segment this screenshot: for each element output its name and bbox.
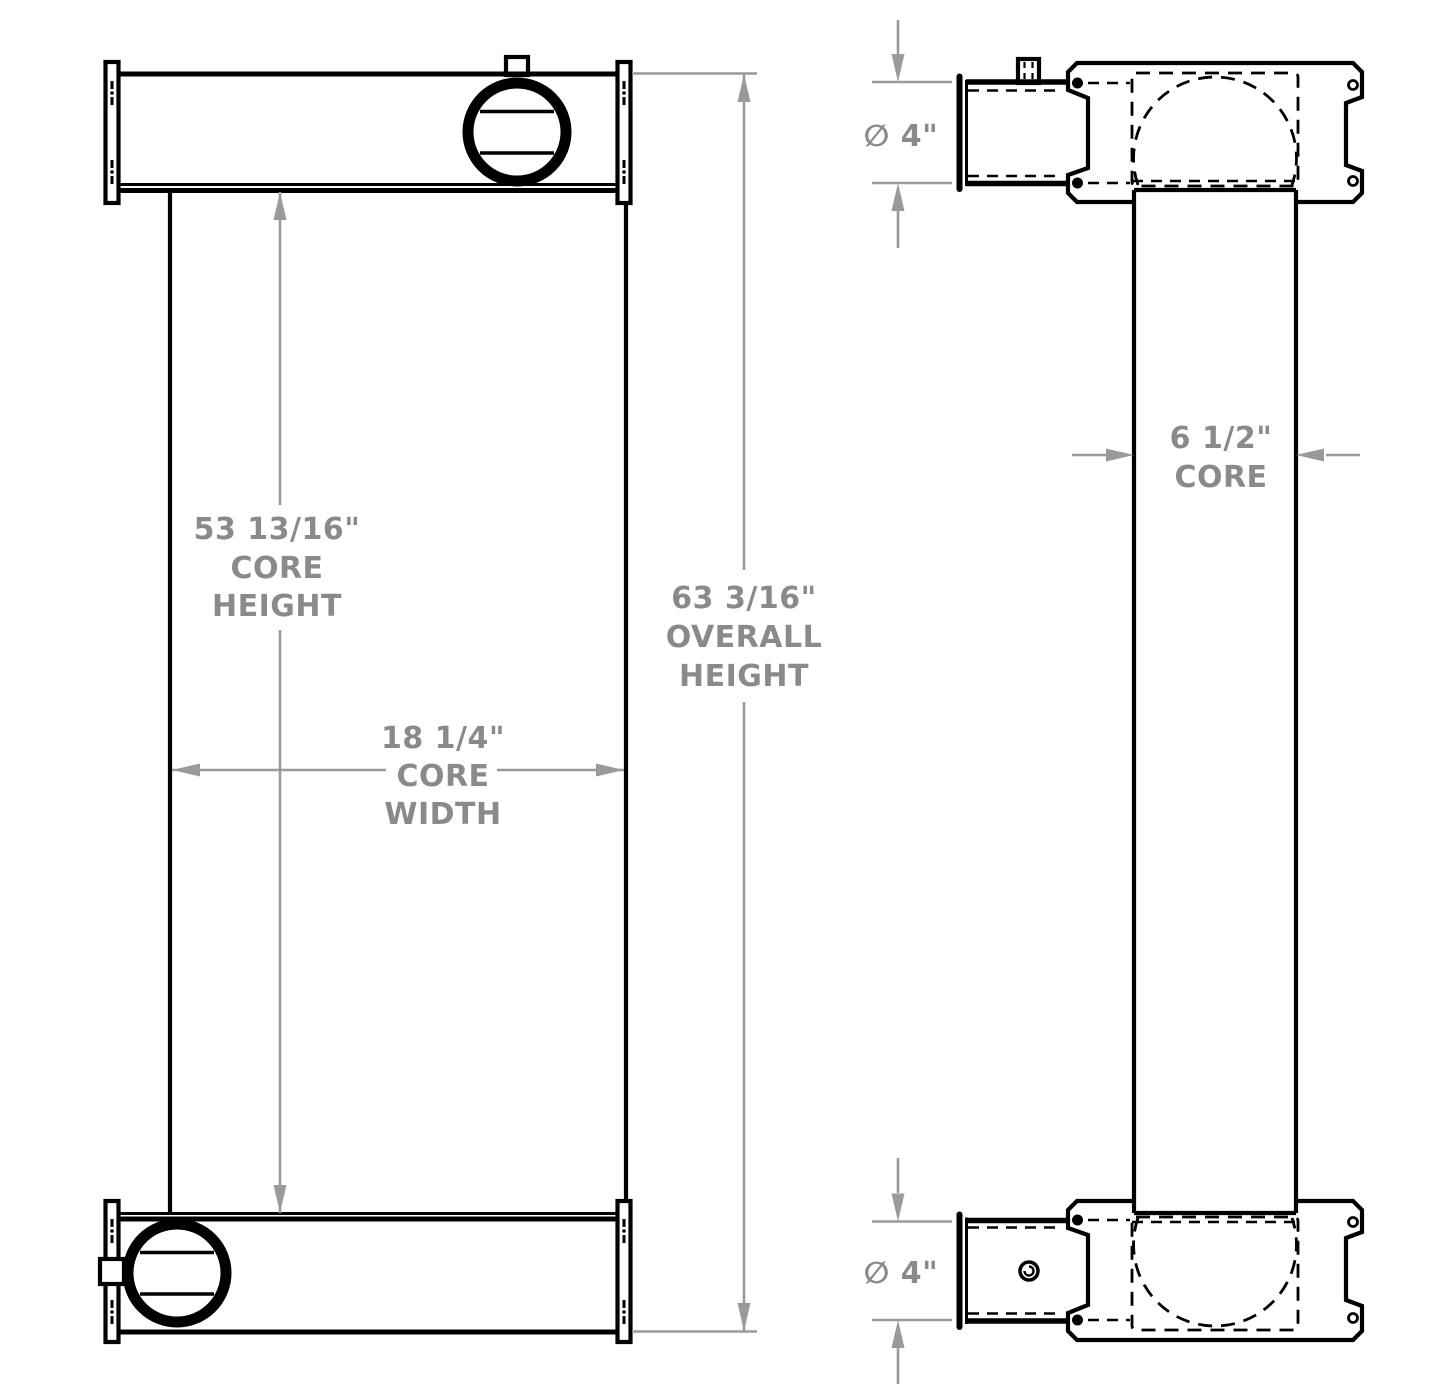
technical-drawing: 53 13/16" CORE HEIGHT 18 1/4" CORE WIDTH… [0,0,1440,1397]
bolt-hole [1349,177,1358,186]
bolt-hole [1349,1218,1358,1227]
side-view: ∅ 4" ∅ 4" 6 1/2" CORE [864,20,1362,1384]
arrow-up-icon [274,192,287,220]
bolt-hole-filled [1072,1315,1083,1326]
core-width-label-2: WIDTH [384,797,501,832]
core-height-value: 53 13/16" [194,512,361,547]
bottom-port-diameter-label: ∅ 4" [864,1256,939,1291]
bolt-hole-filled [1072,1215,1083,1226]
core-width-dimension: 18 1/4" CORE WIDTH [172,721,624,832]
arrow-up-icon [892,183,905,211]
arrow-down-icon [892,54,905,82]
bolt-hole [1349,1314,1358,1323]
arrow-up-icon [738,74,751,102]
top-tank-port [468,83,566,181]
hidden-bolt-lines [1088,83,1130,183]
side-top-tank [960,59,1363,202]
drawing-sheet: 53 13/16" CORE HEIGHT 18 1/4" CORE WIDTH… [0,0,1440,1397]
hidden-bolt-lines [1088,1220,1130,1320]
front-core [170,190,626,1214]
core-depth-dimension: 6 1/2" CORE [1072,421,1360,495]
overall-height-value: 63 3/16" [671,581,816,616]
drain-plug-slot [1025,1267,1034,1276]
bolt-hole [1349,81,1358,90]
top-port-diameter-label: ∅ 4" [864,119,939,154]
core-height-label-1: CORE [230,551,323,586]
core-width-label-1: CORE [396,759,489,794]
bolt-hole-filled [1072,178,1083,189]
core-height-dimension: 53 13/16" CORE HEIGHT [194,192,361,1213]
bottom-port-diameter-dimension: ∅ 4" [864,1158,952,1384]
core-depth-value: 6 1/2" [1170,421,1273,456]
arrow-right-icon [1106,449,1134,462]
hidden-tank-outline [1132,73,1298,186]
core-width-value: 18 1/4" [381,721,505,756]
overall-height-dimension: 63 3/16" OVERALL HEIGHT [632,74,822,1332]
bottom-tank-port [128,1224,226,1322]
core-height-label-2: HEIGHT [212,589,342,624]
overall-height-label-1: OVERALL [666,620,822,655]
top-pipe-hidden-lines [968,91,1062,177]
arrow-down-icon [738,1303,751,1331]
side-bottom-tank [960,1201,1363,1340]
side-core [1134,190,1296,1213]
arrow-left-icon [172,764,200,777]
hidden-port-circle [1134,1218,1297,1326]
arrow-up-icon [892,1320,905,1348]
top-port-diameter-dimension: ∅ 4" [864,20,952,248]
bottom-pipe-hidden-lines [968,1228,1062,1314]
hidden-port-circle [1134,77,1297,185]
front-top-tank [106,57,631,203]
drain-plug-icon [1020,1262,1038,1280]
overall-height-label-2: HEIGHT [679,659,809,694]
front-bottom-tank [100,1201,631,1342]
core-depth-label: CORE [1174,460,1267,495]
arrow-left-icon [1296,449,1324,462]
arrow-right-icon [596,764,624,777]
bolt-hole-filled [1072,78,1083,89]
arrow-down-icon [892,1194,905,1222]
front-view: 53 13/16" CORE HEIGHT 18 1/4" CORE WIDTH… [100,57,822,1342]
bottom-tank-drain-fitting [100,1259,124,1284]
hidden-tank-outline [1132,1217,1298,1330]
side-core-outline [1134,190,1296,1213]
arrow-down-icon [274,1185,287,1213]
